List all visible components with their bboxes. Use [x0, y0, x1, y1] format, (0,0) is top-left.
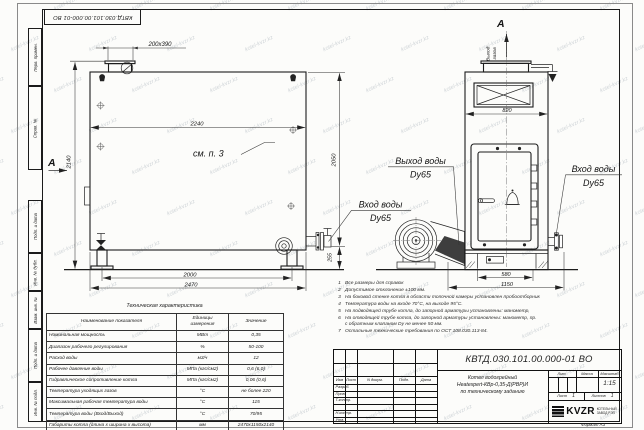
lifting-lug-icon	[290, 74, 296, 81]
col-name: Наименование показателя	[47, 314, 177, 331]
dim-2140: 2140	[67, 155, 73, 170]
water-inlet-right-dy65: Dy65	[583, 178, 605, 188]
kvzr-logo-icon	[552, 406, 564, 417]
front-view-dimensions	[329, 31, 623, 291]
gas-outlet-label-1: Выход	[486, 46, 492, 61]
boiler-side-view	[64, 61, 344, 270]
door-hinge-icon	[531, 201, 537, 207]
furnace-door	[471, 144, 538, 249]
row-tkontr: Т.контр.	[334, 397, 359, 404]
door-hinge-icon	[531, 165, 537, 171]
door-lock-icon	[507, 192, 518, 204]
water-inlet-right-label: Вход воды	[572, 164, 616, 174]
gas-outlet-label-2: газов	[493, 47, 498, 60]
title-block: Изм Лист N докум. Подп. Дата Разраб. Про…	[333, 349, 622, 424]
note-line: 5На подводящей трубе котла, до запорной …	[334, 309, 550, 316]
note-line: 2Допустимое отклонение ±100 мм.	[334, 288, 550, 295]
table-row: Температура уходящих газов°Сне более 220	[47, 386, 284, 397]
note-line: 1Все размеры для справок	[334, 281, 550, 288]
masshtab-label: Масштаб	[598, 370, 621, 377]
sheets-cell: Листов1	[584, 392, 621, 400]
drain-valve-icon	[96, 240, 106, 245]
kvzr-logo: KVZR КОТЕЛЬНЫЙ ЗАВОД РЭП	[548, 400, 621, 423]
col-podp: Подп.	[393, 376, 415, 384]
table-row: Расход водым3/ч12	[47, 353, 284, 364]
col-data: Дата	[415, 376, 437, 384]
dim-255: 255	[328, 253, 334, 263]
table-row: Максимальная рабочая температура воды°С1…	[47, 398, 284, 409]
water-inlet-left-label: Вход воды	[359, 200, 403, 210]
format-label: Формат А3	[560, 422, 626, 427]
drawing-sheet: kotel-kvzr.kzkotel-kvzr.kzkotel-kvzr.kzk…	[0, 0, 644, 430]
col-izm: Изм	[334, 376, 345, 384]
col-value: Значение	[229, 314, 284, 331]
side-view-dimensions	[49, 47, 346, 292]
col-list: Лист	[345, 376, 357, 384]
doc-number: КВТД.030.101.00.000-01 ВО	[437, 350, 621, 370]
kvzr-logo-subtext: КОТЕЛЬНЫЙ ЗАВОД РЭП	[597, 408, 617, 415]
table-row: Температура воды (Вход/Выход)°С70/95	[47, 409, 284, 420]
massa-label: Масса	[576, 370, 598, 377]
table-row: Номинальная мощностьМВт0,35	[47, 331, 284, 342]
scale-value: 1:15	[598, 377, 621, 392]
sheet-cell: Лист1	[548, 392, 584, 400]
product-name: Котел водогрейный Heatexpert-КВр-0,35-Д(…	[437, 370, 548, 428]
tech-characteristics-table: Наименование показателя Единицы измерени…	[46, 313, 284, 430]
dim-2050: 2050	[332, 153, 338, 168]
table-row: Рабочее давление водыМПа (кгс/см2)0,6 (6…	[47, 364, 284, 375]
air-vent-valve-icon	[549, 74, 557, 82]
dim-2470: 2470	[184, 282, 199, 288]
section-marker-a-left: А	[47, 157, 56, 169]
table-row: Гидравлическое сопротивление котлаМПа (к…	[47, 375, 284, 386]
water-outlet-dy65: Dy65	[410, 170, 432, 180]
row-utv: Утв.	[334, 417, 359, 424]
see-note-3-label: см. п. 3	[193, 149, 224, 159]
flange-icon	[276, 238, 293, 255]
water-inlet-left-dy65: Dy65	[370, 213, 392, 223]
table-row: Габариты котла (длина х ширина х высота)…	[47, 420, 284, 430]
blower-fan	[393, 217, 465, 268]
technical-notes: 1Все размеры для справок 2Допустимое отк…	[334, 281, 550, 336]
col-ndok: N докум.	[357, 376, 393, 384]
water-outlet-label: Выход воды	[395, 156, 446, 166]
tech-table-title: Техническая характеристика	[46, 303, 283, 309]
inlet-valve-icon	[324, 236, 331, 248]
table-row: Диапазон рабочего регулирования%50-100	[47, 342, 284, 353]
dim-2240: 2240	[190, 122, 205, 128]
door-hinge-icon	[531, 183, 537, 189]
door-hinge-icon	[531, 219, 537, 225]
lifting-lug-icon	[99, 74, 105, 81]
kvzr-logo-text: KVZR	[566, 406, 594, 417]
note-line: 7Остальные технические требования по ОСТ…	[334, 329, 550, 336]
dim-200x390: 200х390	[147, 42, 172, 48]
note-line: 3На боковой стенке котла в области топоч…	[334, 295, 550, 302]
lit-label: Лит.	[548, 370, 576, 377]
dim-580: 580	[501, 272, 511, 278]
table-header-row: Наименование показателя Единицы измерени…	[47, 314, 284, 331]
col-units: Единицы измерения	[177, 314, 229, 331]
section-marker-a-top: А	[496, 18, 505, 30]
dim-820: 820	[502, 108, 512, 114]
note-line: 4Температура воды на входе 70°С, на выхо…	[334, 302, 550, 309]
dim-2000: 2000	[183, 272, 198, 278]
